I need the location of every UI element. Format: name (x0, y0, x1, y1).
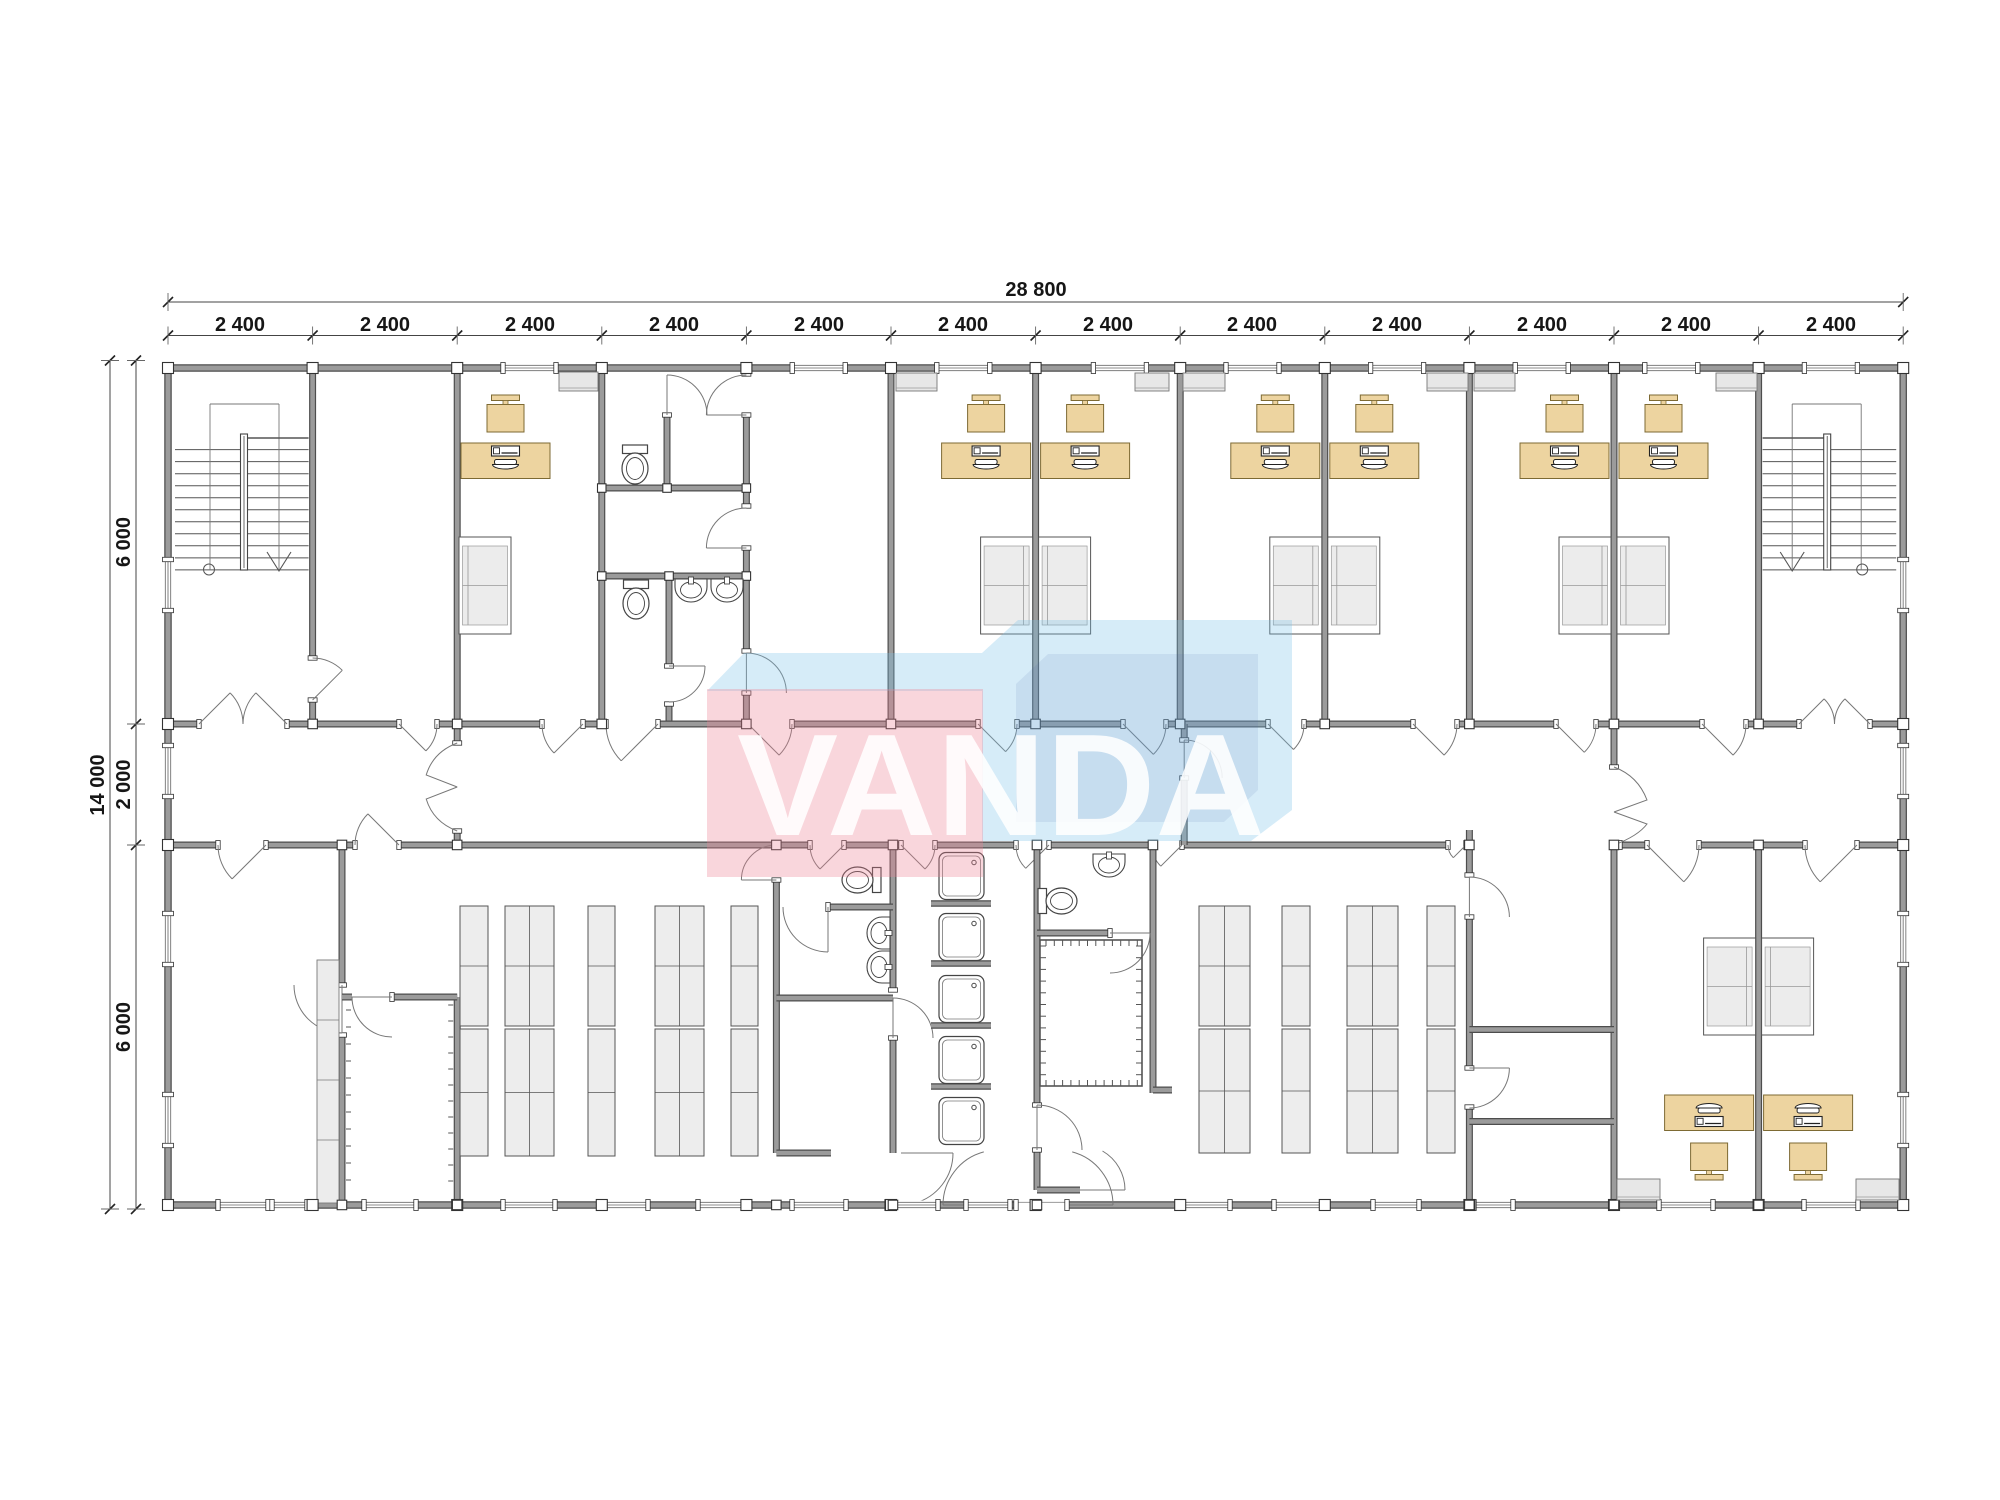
svg-text:2 400: 2 400 (649, 314, 699, 336)
svg-text:6 000: 6 000 (113, 1002, 135, 1052)
svg-text:2 400: 2 400 (1806, 314, 1856, 336)
svg-text:14 000: 14 000 (87, 754, 109, 815)
svg-text:VANDA: VANDA (737, 704, 1265, 866)
svg-text:6 000: 6 000 (113, 517, 135, 567)
svg-text:2 400: 2 400 (1227, 314, 1277, 336)
svg-text:2 400: 2 400 (360, 314, 410, 336)
svg-text:2 400: 2 400 (1083, 314, 1133, 336)
svg-text:2 400: 2 400 (215, 314, 265, 336)
svg-text:2 400: 2 400 (1661, 314, 1711, 336)
svg-text:28 800: 28 800 (1005, 279, 1066, 301)
svg-text:2 000: 2 000 (113, 759, 135, 809)
svg-text:2 400: 2 400 (1517, 314, 1567, 336)
svg-text:2 400: 2 400 (1372, 314, 1422, 336)
svg-text:2 400: 2 400 (938, 314, 988, 336)
svg-text:2 400: 2 400 (794, 314, 844, 336)
svg-text:2 400: 2 400 (505, 314, 555, 336)
